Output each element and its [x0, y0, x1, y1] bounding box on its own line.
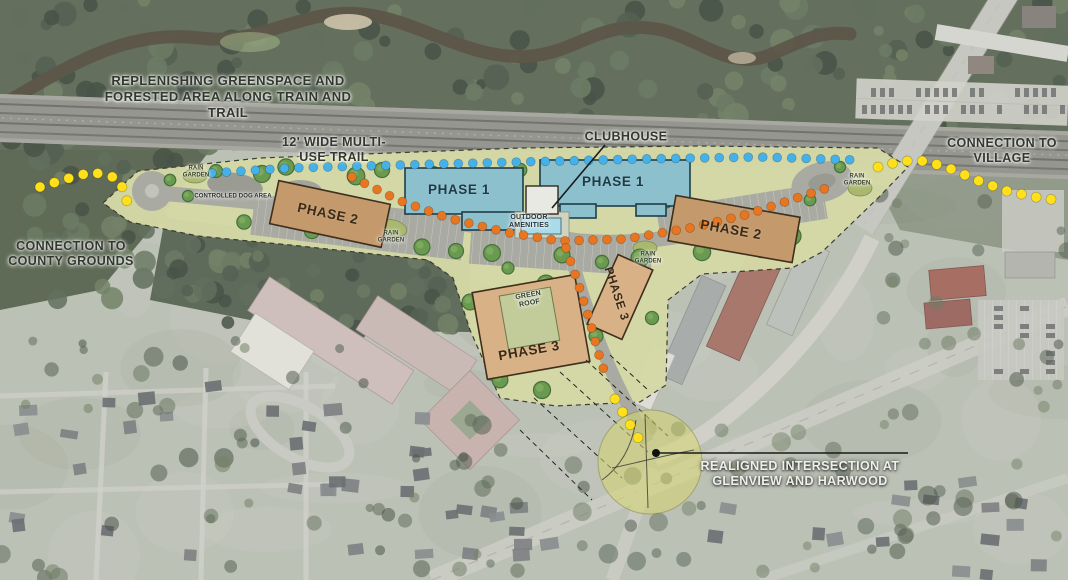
rain-garden-label-west: RAIN GARDEN	[176, 165, 216, 178]
connection-village-annotation: CONNECTION TO VILLAGE	[941, 136, 1063, 167]
rain-garden-label-central: RAIN GARDEN	[628, 251, 668, 264]
multi-use-trail-annotation: 12' WIDE MULTI-USE TRAIL	[274, 135, 394, 166]
controlled-dog-area-label: CONTROLLED DOG AREA	[193, 194, 273, 201]
greenspace-annotation: REPLENISHING GREENSPACE AND FORESTED ARE…	[92, 73, 364, 121]
phase1-west-label: PHASE 1	[428, 182, 490, 197]
realigned-leader-dot	[652, 449, 660, 457]
phase1-east-label: PHASE 1	[582, 174, 644, 189]
outdoor-amenities-label: OUTDOOR AMENITIES	[503, 214, 555, 230]
connection-county-annotation: CONNECTION TO COUNTY GROUNDS	[5, 239, 137, 270]
master-plan-canvas: REPLENISHING GREENSPACE AND FORESTED ARE…	[0, 0, 1068, 580]
realigned-intersection-annotation: REALIGNED INTERSECTION AT GLENVIEW AND H…	[680, 459, 920, 490]
rain-garden-label-east: RAIN GARDEN	[837, 173, 877, 186]
rain-garden-label-mid: RAIN GARDEN	[371, 230, 411, 243]
clubhouse-annotation: CLUBHOUSE	[561, 129, 691, 144]
